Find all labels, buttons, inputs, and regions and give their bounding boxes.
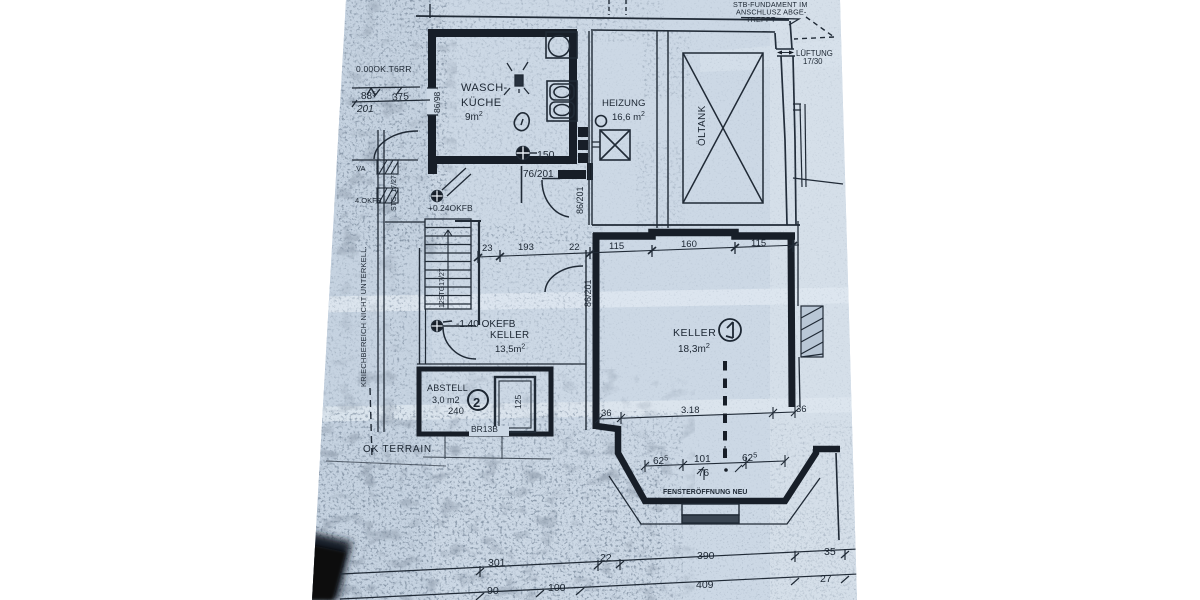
svg-text:115: 115 <box>609 241 624 252</box>
svg-text:76: 76 <box>698 468 710 479</box>
svg-text:201: 201 <box>356 104 374 115</box>
svg-text:OK TERRAIN: OK TERRAIN <box>363 444 432 455</box>
svg-text:35: 35 <box>824 546 836 558</box>
svg-text:100: 100 <box>548 582 566 594</box>
svg-text:23: 23 <box>482 243 493 254</box>
svg-text:86/98: 86/98 <box>432 91 442 113</box>
svg-text:27: 27 <box>820 573 832 585</box>
svg-text:TREPPT: TREPPT <box>746 15 776 24</box>
svg-text:125: 125 <box>513 395 523 409</box>
svg-text:90: 90 <box>487 585 499 597</box>
svg-text:375: 375 <box>392 91 410 103</box>
svg-text:86/201: 86/201 <box>575 186 585 214</box>
svg-text:13,5m2: 13,5m2 <box>495 344 525 356</box>
svg-text:.VA: .VA <box>354 164 366 173</box>
svg-text:2: 2 <box>473 395 480 410</box>
svg-text:22: 22 <box>569 242 580 253</box>
svg-text:HEIZUNG: HEIZUNG <box>602 98 646 109</box>
svg-text:FENSTERÖFFNUNG NEU: FENSTERÖFFNUNG NEU <box>663 487 748 496</box>
svg-text:76/201: 76/201 <box>523 169 554 180</box>
svg-text:WASCH-: WASCH- <box>461 82 508 94</box>
svg-text:KELLER: KELLER <box>673 327 716 339</box>
svg-text:3,0 m2: 3,0 m2 <box>432 395 460 405</box>
svg-text:390: 390 <box>697 550 715 562</box>
svg-text:4.OKFB: 4.OKFB <box>355 196 382 205</box>
svg-text:86/201: 86/201 <box>583 279 593 307</box>
svg-text:409: 409 <box>696 579 714 591</box>
svg-text:BR13B: BR13B <box>471 424 498 434</box>
svg-text:150: 150 <box>537 149 555 161</box>
svg-text:193: 193 <box>518 242 534 253</box>
svg-text:ABSTELL: ABSTELL <box>427 383 468 393</box>
svg-text:STG. 17/27: STG. 17/27 <box>391 175 398 211</box>
svg-text:KÜCHE: KÜCHE <box>461 97 502 109</box>
svg-text:160: 160 <box>681 239 697 250</box>
svg-text:36: 36 <box>796 404 807 415</box>
svg-text:-1.40 OKEFB: -1.40 OKEFB <box>456 319 516 330</box>
svg-text:KRIECHBEREICH NICHT UNTERKELL.: KRIECHBEREICH NICHT UNTERKELL. <box>359 246 368 387</box>
svg-text:12STG17/27: 12STG17/27 <box>439 268 446 308</box>
svg-text:+0.24OKFB: +0.24OKFB <box>428 203 473 213</box>
svg-text:17/30: 17/30 <box>803 57 823 66</box>
svg-text:KELLER: KELLER <box>490 330 529 341</box>
svg-text:18,3m2: 18,3m2 <box>678 341 710 355</box>
svg-text:301: 301 <box>488 557 506 569</box>
svg-text:115: 115 <box>751 238 766 249</box>
svg-text:16,6 m2: 16,6 m2 <box>612 111 645 123</box>
svg-text:240: 240 <box>448 406 464 417</box>
svg-text:3.18: 3.18 <box>681 405 700 416</box>
svg-text:ÖLTANK: ÖLTANK <box>697 105 708 146</box>
svg-text:36: 36 <box>601 408 612 419</box>
svg-text:101: 101 <box>694 454 711 465</box>
svg-text:0.00OK.T6RR: 0.00OK.T6RR <box>356 64 412 74</box>
svg-text:22: 22 <box>600 552 612 564</box>
